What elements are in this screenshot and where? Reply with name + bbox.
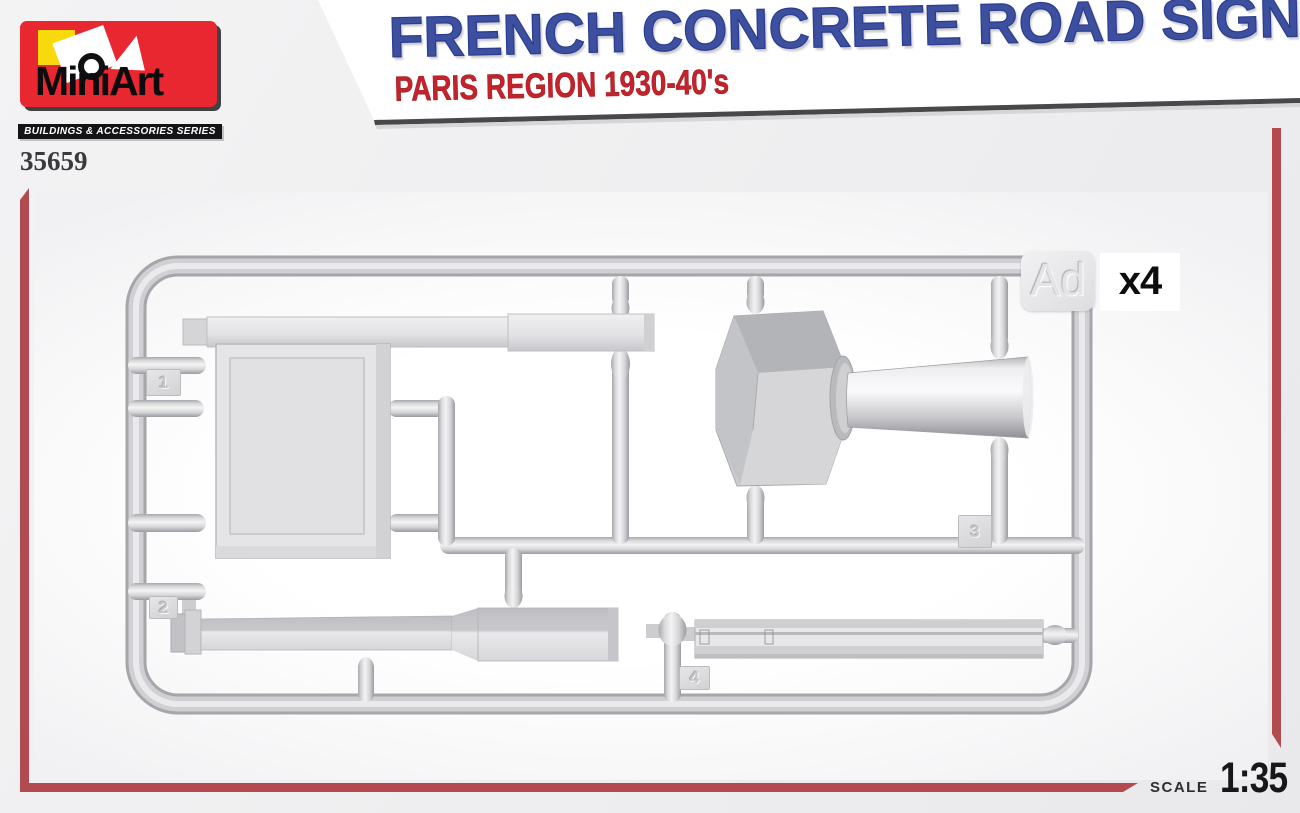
part-sign-plate <box>216 344 390 558</box>
part-sign-head <box>716 311 1034 486</box>
part-number-tag-3: 3 <box>958 515 992 548</box>
part-channel-rail <box>695 620 1043 658</box>
accent-line-right <box>1272 128 1281 748</box>
page: FRENCH CONCRETE ROAD SIGNS PARIS REGION … <box>0 0 1300 813</box>
brand-name: MiniArt <box>35 61 162 102</box>
sprue-quantity: x4 <box>1100 253 1180 311</box>
part-number-tag-2: 2 <box>149 596 178 619</box>
sprue-label-tag: Ad <box>1021 251 1095 311</box>
part-number-tag-1: 1 <box>146 369 181 396</box>
accent-line-left <box>20 188 29 790</box>
part-number-tag-4: 4 <box>679 666 710 690</box>
product-code: 35659 <box>20 146 88 177</box>
accent-line-bottom <box>20 783 1138 792</box>
page-title: FRENCH CONCRETE ROAD SIGNS <box>388 0 1300 67</box>
part-square-post <box>171 608 618 661</box>
miniart-logo: MiniArt <box>20 21 217 107</box>
scale-value: 1:35 <box>1220 757 1287 800</box>
series-label: BUILDINGS & ACCESSORIES SERIES <box>18 124 222 139</box>
scale-label: SCALE <box>1150 779 1208 796</box>
